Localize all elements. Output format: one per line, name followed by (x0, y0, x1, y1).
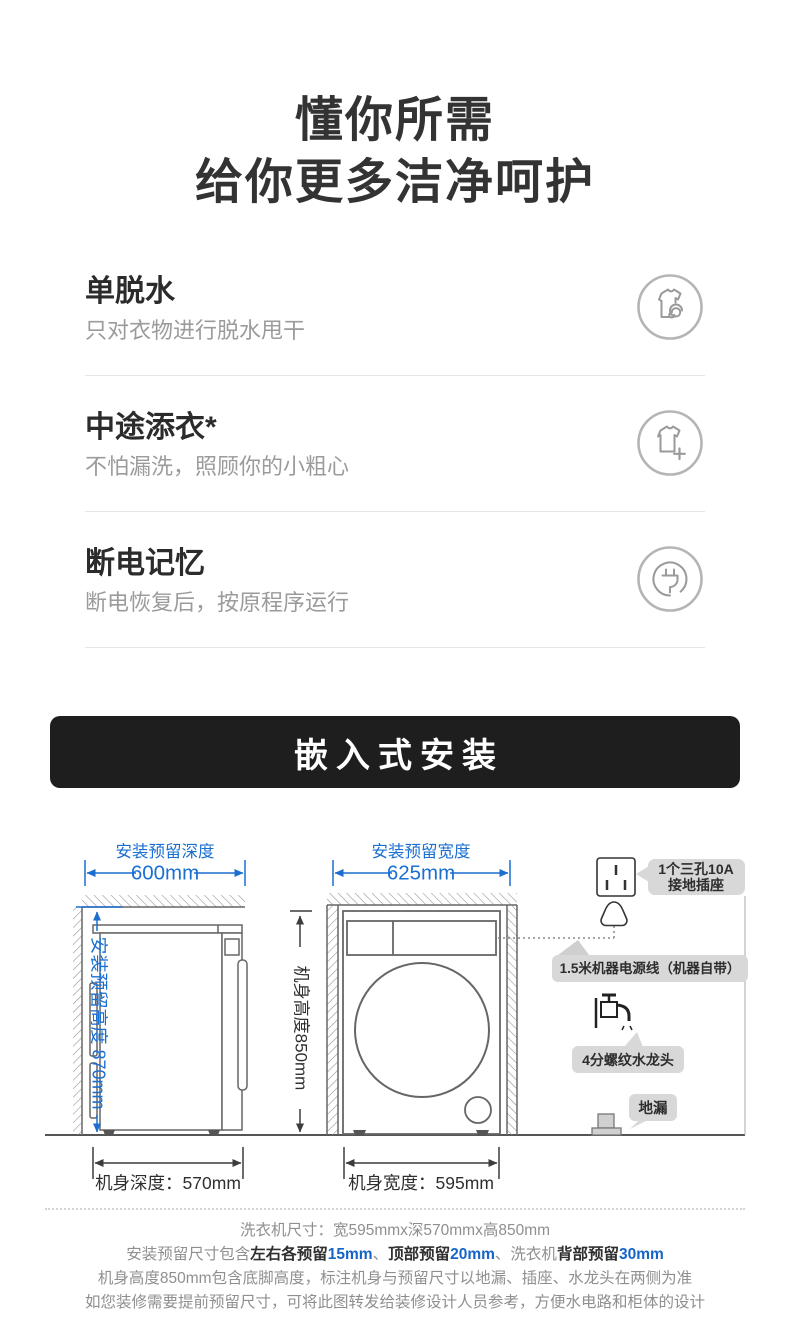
feature-desc: 只对衣物进行脱水甩干 (85, 317, 615, 345)
front-view-diagram: 安装预留宽度 625mm 机身高度850mm (290, 842, 517, 1193)
dim-label: 机身高度850mm (292, 966, 311, 1091)
svg-text:1.5米机器电源线（机器自带）: 1.5米机器电源线（机器自带） (560, 960, 741, 976)
svg-text:地漏: 地漏 (639, 1099, 668, 1117)
dimension-depth-reserved: 安装预留深度 600mm (85, 842, 245, 886)
washer-door (355, 963, 489, 1097)
utility-annotations: 1个三孔10A 接地插座 1.5米机器电源线（机器自带） (498, 858, 748, 1135)
footnotes: 洗衣机尺寸：宽595mmx深570mmx高850mm 安装预留尺寸包含左右各预留… (0, 1210, 790, 1315)
footnote-height: 机身高度850mm包含底脚高度，标注机身与预留尺寸以地漏、插座、水龙头在两侧为准 (0, 1267, 790, 1291)
feature-row-power-memory: 断电记忆 断电恢复后，按原程序运行 (85, 512, 705, 648)
page-title: 懂你所需 给你更多洁净呵护 (0, 0, 790, 214)
washer-filter-cap (465, 1097, 491, 1123)
installation-diagram: 安装预留深度 600mm 安装预留高度 870mm (40, 833, 750, 1208)
dimension-body-depth: 机身深度：570mm (93, 1147, 243, 1193)
shirt-spin-icon (635, 272, 705, 342)
dim-label: 安装预留宽度 (372, 842, 471, 861)
title-line-1: 懂你所需 (0, 90, 790, 152)
dim-value: 625mm (387, 862, 455, 885)
section-banner-label: 嵌入式安装 (286, 728, 504, 777)
dim-label: 安装预留深度 (116, 842, 215, 861)
washer-side-view (90, 925, 247, 1130)
dimension-width-reserved: 安装预留宽度 625mm (333, 842, 510, 886)
feature-list: 单脱水 只对衣物进行脱水甩干 中途添衣* 不怕漏洗，照顾你的小粗心 (85, 240, 705, 648)
floor-drain-label: 地漏 (629, 1094, 677, 1129)
dim-value: 600mm (131, 862, 199, 885)
socket-icon (597, 858, 635, 896)
footnote-advice: 如您装修需要提前预留尺寸，可将此图转发给装修设计人员参考，方便水电路和柜体的设计 (0, 1291, 790, 1315)
dimension-body-height: 机身高度850mm (290, 911, 312, 1132)
faucet-label: 4分螺纹水龙头 (572, 1032, 684, 1073)
washer-front-view (343, 911, 500, 1134)
dim-label: 机身深度：570mm (95, 1173, 241, 1193)
feature-title: 断电记忆 (85, 546, 615, 582)
feature-title: 中途添衣* (85, 410, 615, 446)
section-banner: 嵌入式安装 (50, 716, 740, 788)
svg-text:4分螺纹水龙头: 4分螺纹水龙头 (582, 1052, 674, 1068)
feature-desc: 不怕漏洗，照顾你的小粗心 (85, 453, 615, 481)
footnote-reserved: 安装预留尺寸包含左右各预留15mm、顶部预留20mm、洗衣机背部预留30mm (0, 1243, 790, 1267)
svg-text:接地插座: 接地插座 (668, 877, 724, 893)
power-plug-icon (635, 544, 705, 614)
product-detail-page: 懂你所需 给你更多洁净呵护 单脱水 只对衣物进行脱水甩干 中途添衣* 不怕漏洗，… (0, 0, 790, 1315)
dimension-body-width: 机身宽度：595mm (344, 1147, 499, 1193)
plug-icon (601, 902, 627, 926)
power-cord-label: 1.5米机器电源线（机器自带） (552, 940, 748, 982)
floor-drain-icon (592, 1114, 621, 1135)
feature-row-add-clothes: 中途添衣* 不怕漏洗，照顾你的小粗心 (85, 376, 705, 512)
svg-text:1个三孔10A: 1个三孔10A (658, 861, 733, 877)
side-view-diagram: 安装预留深度 600mm 安装预留高度 870mm (73, 842, 247, 1193)
feature-desc: 断电恢复后，按原程序运行 (85, 589, 615, 617)
dim-label: 机身宽度：595mm (348, 1173, 494, 1193)
feature-title: 单脱水 (85, 274, 615, 310)
footnote-size: 洗衣机尺寸：宽595mmx深570mmx高850mm (0, 1219, 790, 1243)
feature-row-single-spin: 单脱水 只对衣物进行脱水甩干 (85, 240, 705, 376)
socket-label: 1个三孔10A 接地插座 (636, 859, 745, 895)
title-line-2: 给你更多洁净呵护 (0, 152, 790, 214)
dim-label: 安装预留高度 870mm (88, 936, 108, 1109)
shirt-add-icon (635, 408, 705, 478)
faucet-icon (596, 995, 632, 1030)
